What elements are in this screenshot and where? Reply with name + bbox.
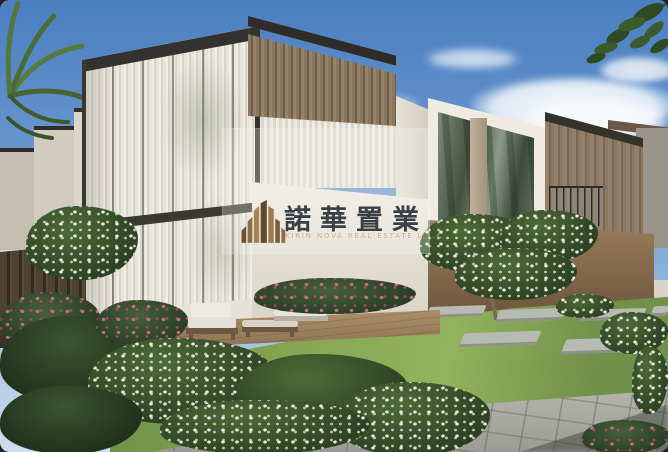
cloud [425,48,520,68]
sofa-base [274,316,328,321]
property-photo: 諾華置業 KIRIN NOVA REAL-ESTATE L.L.C [0,0,668,452]
lounge-chair [186,300,238,340]
company-logo-icon [240,198,286,248]
company-name-en: KIRIN NOVA REAL-ESTATE L.L.C [285,232,444,240]
watermark-panel: 諾華置業 KIRIN NOVA REAL-ESTATE L.L.C [222,128,430,254]
table-leg [290,332,294,337]
stepping-stone [459,331,542,348]
tree-branch [548,0,668,82]
company-name-cn: 諾華置業 [284,198,428,232]
white-flower-bush [160,400,370,452]
garden-bush [0,386,142,452]
pink-corner-plant [582,420,668,452]
table-leg [246,332,250,337]
chair-leg [231,334,235,340]
